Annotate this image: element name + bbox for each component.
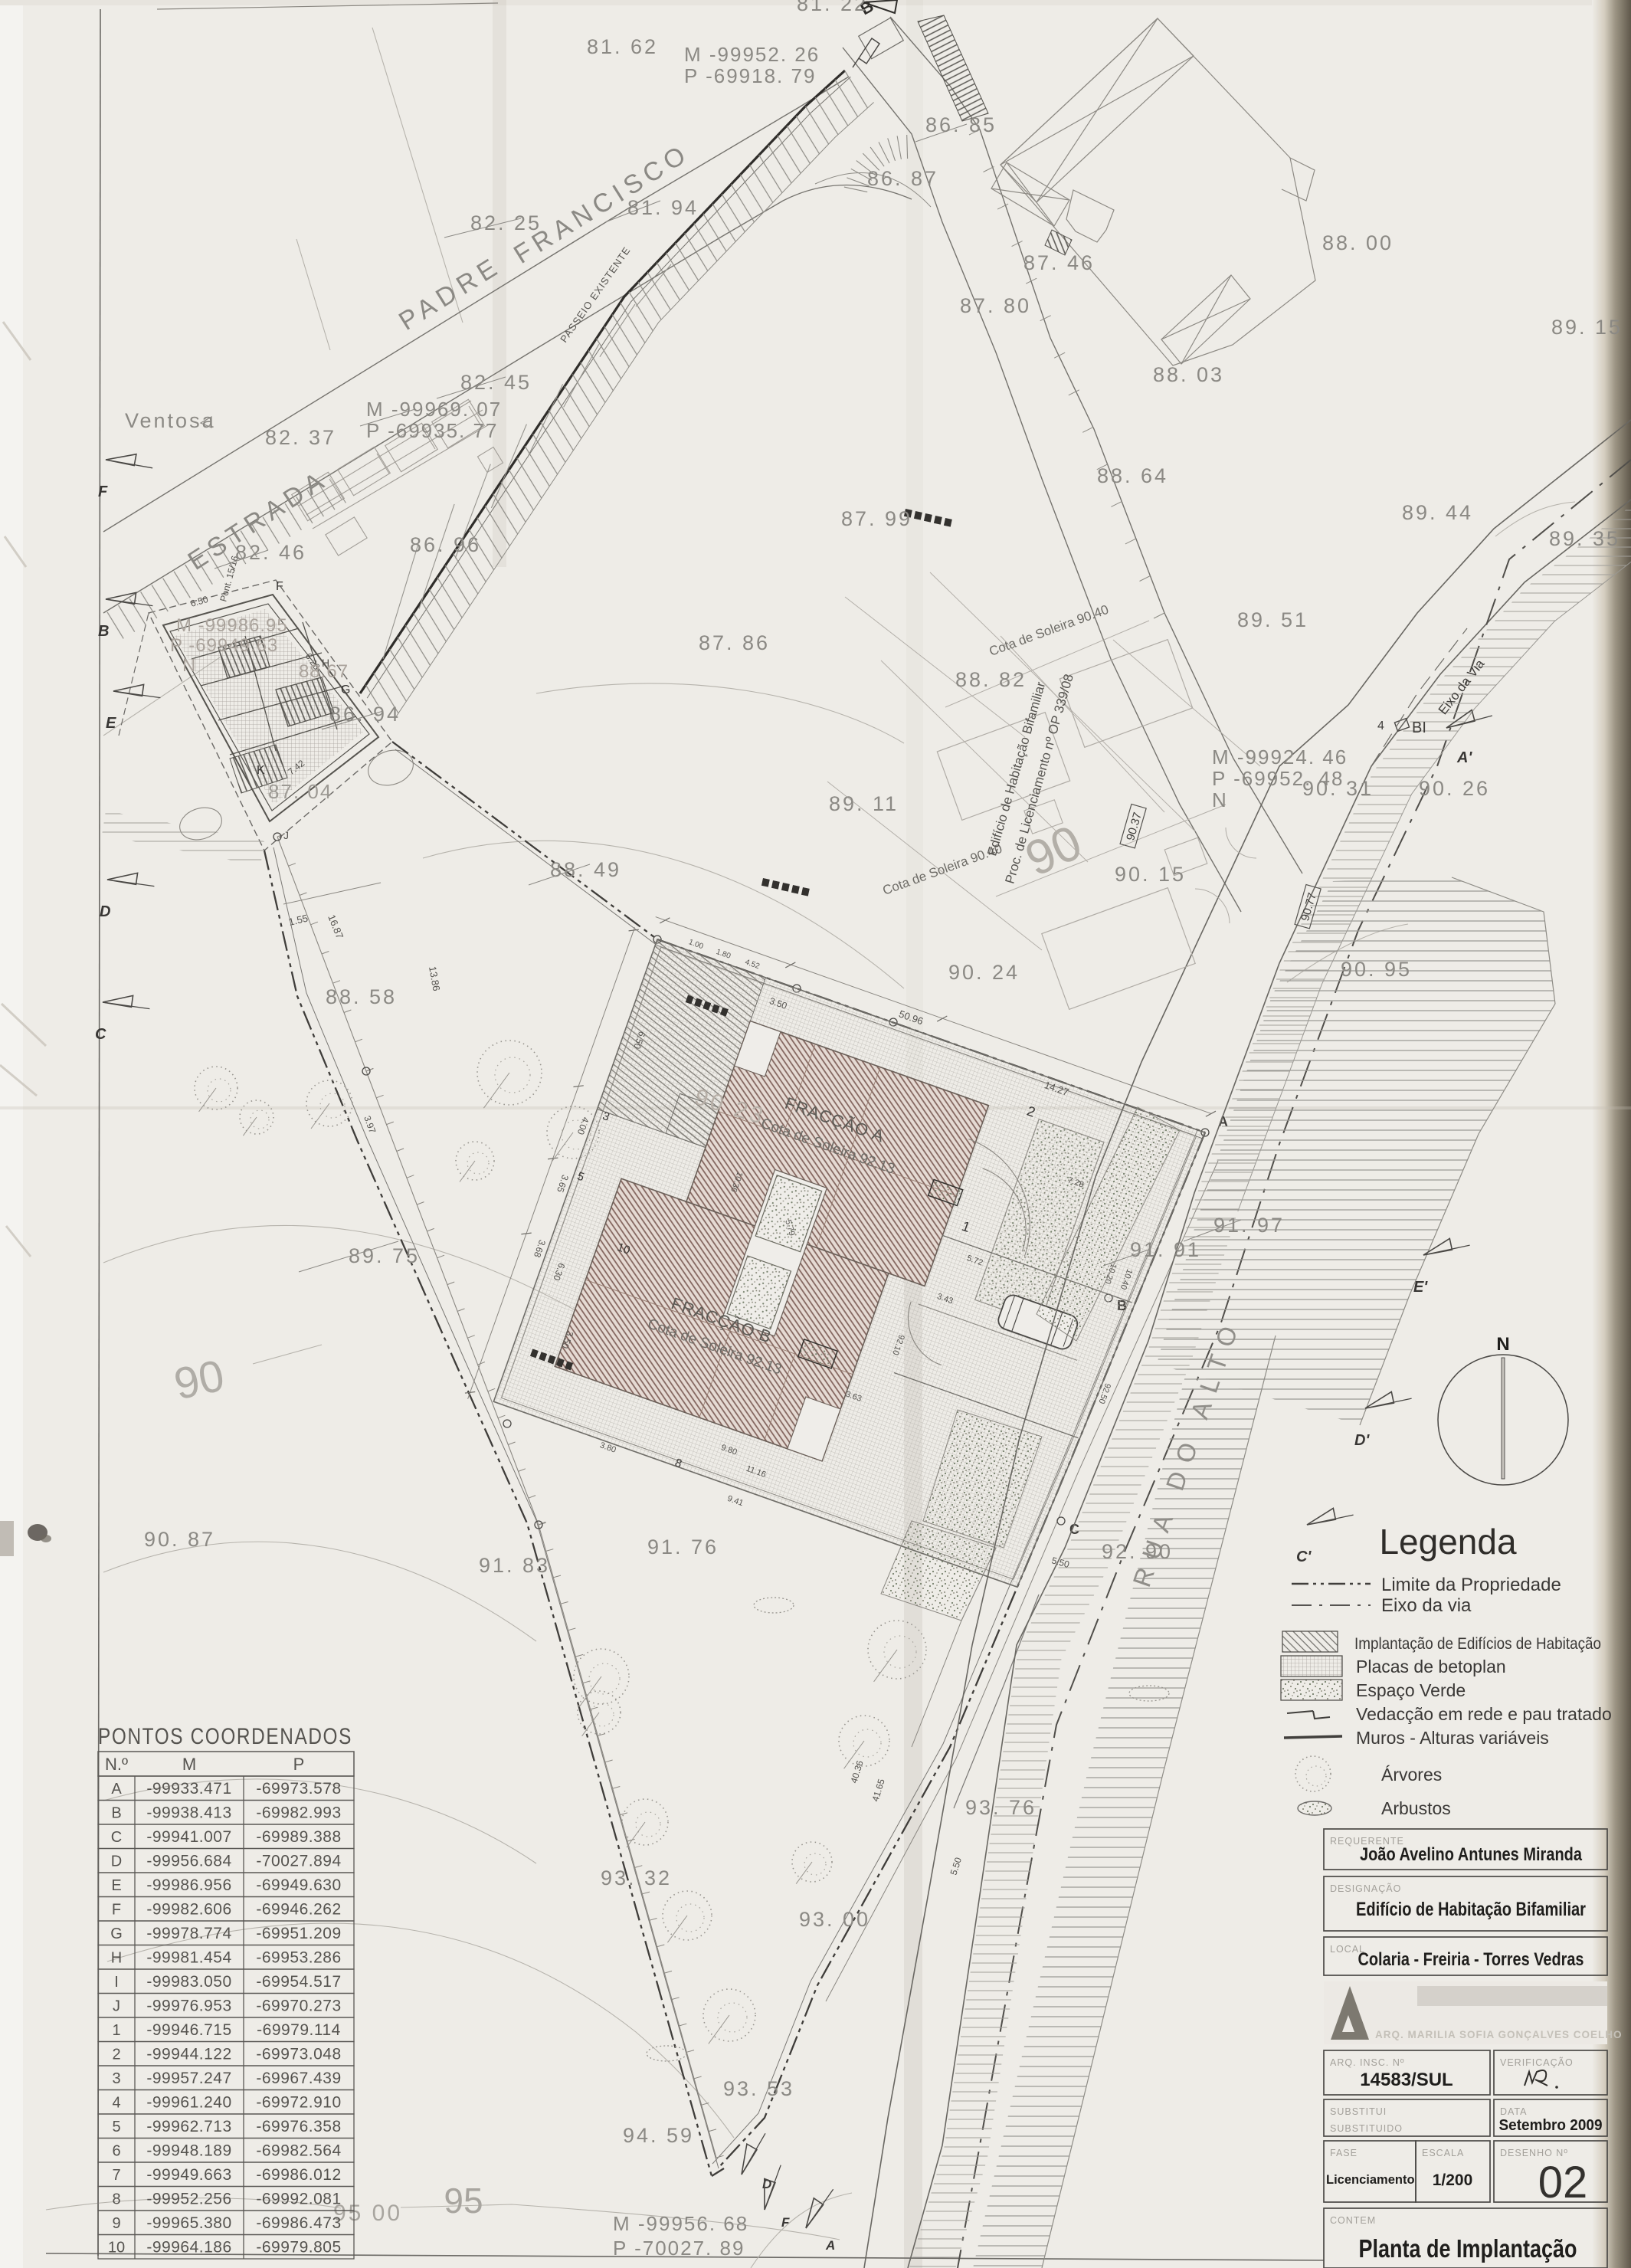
svg-text:Árvores: Árvores bbox=[1381, 1765, 1442, 1785]
svg-text:-69953.286: -69953.286 bbox=[256, 1949, 341, 1967]
svg-text:M -99969. 07: M -99969. 07 bbox=[366, 398, 502, 421]
svg-text:N.º: N.º bbox=[105, 1755, 128, 1774]
svg-text:-69986.473: -69986.473 bbox=[256, 2214, 341, 2232]
svg-text:P -69952. 48: P -69952. 48 bbox=[1212, 767, 1344, 790]
svg-text:-69972.910: -69972.910 bbox=[256, 2094, 341, 2112]
svg-text:02: 02 bbox=[1538, 2158, 1588, 2207]
svg-text:-99986.956: -99986.956 bbox=[146, 1876, 231, 1894]
svg-text:81. 22: 81. 22 bbox=[797, 0, 868, 15]
svg-text:D: D bbox=[111, 1853, 122, 1870]
svg-text:João Avelino Antunes Miranda: João Avelino Antunes Miranda bbox=[1360, 1844, 1583, 1865]
svg-text:92. 90: 92. 90 bbox=[1102, 1540, 1173, 1563]
svg-text:-99978.774: -99978.774 bbox=[146, 1925, 231, 1942]
svg-text:1/200: 1/200 bbox=[1433, 2171, 1473, 2189]
svg-text:Implantação de Edifícios de Ha: Implantação de Edifícios de Habitação bbox=[1354, 1634, 1601, 1653]
svg-text:B: B bbox=[111, 1805, 121, 1822]
svg-text:-69982.564: -69982.564 bbox=[256, 2142, 341, 2160]
svg-text:Muros - Alturas variáveis: Muros - Alturas variáveis bbox=[1356, 1728, 1549, 1748]
svg-text:87. 46: 87. 46 bbox=[1023, 251, 1095, 274]
svg-text:-69979.805: -69979.805 bbox=[256, 2239, 341, 2257]
svg-text:F: F bbox=[98, 483, 108, 500]
svg-text:81. 62: 81. 62 bbox=[587, 35, 658, 58]
svg-text:A: A bbox=[825, 2238, 835, 2253]
svg-text:-99976.953: -99976.953 bbox=[146, 1998, 231, 2015]
svg-text:10: 10 bbox=[108, 2240, 125, 2257]
svg-text:3: 3 bbox=[112, 2070, 120, 2087]
svg-text:C': C' bbox=[1296, 1549, 1312, 1565]
svg-text:93. 32: 93. 32 bbox=[601, 1867, 672, 1889]
svg-text:P -69918. 79: P -69918. 79 bbox=[684, 64, 816, 87]
svg-text:88. 64: 88. 64 bbox=[1097, 464, 1168, 487]
svg-text:M -99956. 68: M -99956. 68 bbox=[613, 2212, 748, 2235]
svg-text:88. 58: 88. 58 bbox=[326, 985, 397, 1008]
svg-text:-69976.358: -69976.358 bbox=[256, 2118, 341, 2135]
svg-text:-99961.240: -99961.240 bbox=[146, 2094, 231, 2112]
svg-text:ARQ. INSC. Nº: ARQ. INSC. Nº bbox=[1330, 2057, 1404, 2068]
svg-text:K: K bbox=[257, 764, 265, 777]
svg-text:DESENHO Nº: DESENHO Nº bbox=[1500, 2148, 1568, 2158]
svg-text:-99933.471: -99933.471 bbox=[146, 1780, 231, 1798]
svg-text:-69951.209: -69951.209 bbox=[256, 1925, 341, 1942]
svg-text:C: C bbox=[95, 1026, 106, 1043]
svg-text:C: C bbox=[111, 1829, 122, 1846]
svg-text:-70027.894: -70027.894 bbox=[256, 1853, 341, 1870]
svg-text:87. 99: 87. 99 bbox=[841, 507, 912, 530]
svg-text:90. 26: 90. 26 bbox=[1419, 777, 1490, 800]
svg-text:2: 2 bbox=[112, 2047, 120, 2063]
svg-text:-99952.256: -99952.256 bbox=[146, 2191, 231, 2208]
svg-text:91. 83: 91. 83 bbox=[479, 1554, 550, 1577]
svg-text:ESCALA: ESCALA bbox=[1422, 2148, 1464, 2158]
svg-text:E': E' bbox=[1413, 1279, 1428, 1296]
svg-text:Licenciamento: Licenciamento bbox=[1326, 2173, 1415, 2187]
svg-text:-99938.413: -99938.413 bbox=[146, 1804, 231, 1822]
svg-text:90. 87: 90. 87 bbox=[144, 1528, 215, 1551]
svg-text:6: 6 bbox=[112, 2143, 120, 2160]
svg-text:-99962.713: -99962.713 bbox=[146, 2118, 231, 2135]
svg-text:N: N bbox=[1496, 1334, 1509, 1355]
svg-text:-99983.050: -99983.050 bbox=[146, 1973, 231, 1991]
svg-text:7: 7 bbox=[112, 2167, 120, 2184]
svg-text:86. 85: 86. 85 bbox=[925, 113, 997, 136]
svg-text:86. 96: 86. 96 bbox=[410, 533, 481, 556]
svg-text:P: P bbox=[293, 1755, 305, 1774]
svg-text:-69949.630: -69949.630 bbox=[256, 1876, 341, 1894]
svg-text:-69986.012: -69986.012 bbox=[256, 2166, 341, 2184]
svg-text:90. 24: 90. 24 bbox=[948, 961, 1020, 984]
svg-text:88. 03: 88. 03 bbox=[1153, 363, 1224, 386]
svg-text:91. 76: 91. 76 bbox=[647, 1535, 719, 1558]
svg-text:D': D' bbox=[1354, 1432, 1370, 1449]
svg-text:88.67: 88.67 bbox=[299, 661, 349, 682]
svg-text:E: E bbox=[111, 1877, 121, 1894]
svg-text:DESIGNAÇÃO: DESIGNAÇÃO bbox=[1330, 1883, 1401, 1894]
svg-text:88. 49: 88. 49 bbox=[550, 858, 621, 881]
svg-text:P -69949.63: P -69949.63 bbox=[170, 635, 278, 656]
svg-text:86. 87: 86. 87 bbox=[867, 167, 938, 190]
svg-text:89. 15: 89. 15 bbox=[1551, 316, 1623, 339]
svg-text:91. 91: 91. 91 bbox=[1130, 1238, 1201, 1261]
svg-text:Planta de Implantação: Planta de Implantação bbox=[1359, 2234, 1577, 2263]
svg-text:-99941.007: -99941.007 bbox=[146, 1828, 231, 1846]
svg-text:90: 90 bbox=[170, 1350, 229, 1409]
svg-text:88. 00: 88. 00 bbox=[1322, 231, 1394, 254]
svg-text:I: I bbox=[114, 1974, 119, 1991]
svg-text:-69967.439: -69967.439 bbox=[256, 2070, 341, 2087]
svg-text:J: J bbox=[113, 1998, 120, 2015]
svg-text:93. 76: 93. 76 bbox=[965, 1796, 1037, 1819]
svg-text:91. 97: 91. 97 bbox=[1213, 1214, 1285, 1237]
svg-text:93. 53: 93. 53 bbox=[723, 2077, 794, 2100]
svg-text:95 00: 95 00 bbox=[333, 2201, 402, 2226]
svg-text:ARQ. MARILIA SOFIA GONÇALVES C: ARQ. MARILIA SOFIA GONÇALVES COELHO bbox=[1375, 2029, 1623, 2040]
svg-text:D: D bbox=[100, 903, 110, 920]
svg-text:89. 11: 89. 11 bbox=[829, 792, 899, 815]
svg-text:Eixo da via: Eixo da via bbox=[1381, 1595, 1472, 1616]
svg-text:-99982.606: -99982.606 bbox=[146, 1901, 231, 1919]
svg-text:M -99986.95: M -99986.95 bbox=[176, 615, 288, 636]
svg-text:Colaria - Freiria - Torres Ved: Colaria - Freiria - Torres Vedras bbox=[1358, 1949, 1584, 1970]
svg-text:Limite da Propriedade: Limite da Propriedade bbox=[1381, 1575, 1561, 1595]
svg-text:M -99952. 26: M -99952. 26 bbox=[684, 43, 820, 66]
svg-text:8: 8 bbox=[112, 2191, 120, 2208]
svg-text:P -70027. 89: P -70027. 89 bbox=[613, 2237, 745, 2260]
svg-text:PONTOS COORDENADOS: PONTOS COORDENADOS bbox=[98, 1724, 352, 1749]
svg-text:82. 45: 82. 45 bbox=[460, 371, 532, 394]
svg-text:87. 80: 87. 80 bbox=[960, 294, 1031, 317]
svg-text:Vedacção em rede e pau tratado: Vedacção em rede e pau tratado bbox=[1356, 1704, 1612, 1724]
svg-text:A': A' bbox=[1456, 749, 1472, 766]
svg-text:D: D bbox=[762, 2177, 771, 2191]
svg-text:1: 1 bbox=[112, 2022, 120, 2039]
svg-text:-69946.262: -69946.262 bbox=[256, 1901, 341, 1919]
svg-text:95: 95 bbox=[444, 2181, 483, 2220]
svg-text:82. 37: 82. 37 bbox=[265, 426, 336, 449]
svg-text:94. 59: 94. 59 bbox=[623, 2124, 694, 2147]
svg-text:N: N bbox=[182, 655, 196, 676]
svg-text:93. 00: 93. 00 bbox=[799, 1908, 870, 1931]
svg-text:FASE: FASE bbox=[1330, 2148, 1358, 2158]
svg-text:CONTEM: CONTEM bbox=[1330, 2215, 1376, 2226]
svg-text:-99948.189: -99948.189 bbox=[146, 2142, 231, 2160]
svg-text:P -69935. 77: P -69935. 77 bbox=[366, 419, 498, 442]
svg-text:4: 4 bbox=[1377, 719, 1384, 733]
svg-text:DATA: DATA bbox=[1500, 2106, 1527, 2117]
svg-text:81. 94: 81. 94 bbox=[627, 196, 699, 219]
svg-text:F: F bbox=[112, 1902, 121, 1919]
svg-text:F: F bbox=[276, 580, 283, 593]
svg-text:M: M bbox=[182, 1755, 196, 1774]
svg-text:-69973.578: -69973.578 bbox=[256, 1780, 341, 1798]
svg-text:-69954.517: -69954.517 bbox=[256, 1973, 341, 1991]
svg-text:4: 4 bbox=[112, 2095, 120, 2112]
svg-text:Arbustos: Arbustos bbox=[1381, 1798, 1451, 1818]
svg-text:90. 15: 90. 15 bbox=[1115, 863, 1186, 886]
svg-text:Edifício de Habitação Bifamili: Edifício de Habitação Bifamiliar bbox=[1356, 1899, 1586, 1920]
svg-text:N: N bbox=[1212, 788, 1228, 811]
svg-text:J: J bbox=[283, 829, 289, 841]
svg-text:-99965.380: -99965.380 bbox=[146, 2214, 231, 2232]
svg-text:-99981.454: -99981.454 bbox=[146, 1949, 231, 1967]
svg-text:-99956.684: -99956.684 bbox=[146, 1853, 231, 1870]
svg-text:-69989.388: -69989.388 bbox=[256, 1828, 341, 1846]
svg-text:87. 04: 87. 04 bbox=[268, 780, 332, 803]
svg-text:89. 75: 89. 75 bbox=[349, 1244, 420, 1267]
svg-text:86. 94: 86. 94 bbox=[329, 703, 401, 726]
svg-text:SUBSTITUI: SUBSTITUI bbox=[1330, 2106, 1387, 2117]
svg-text:BI: BI bbox=[1412, 719, 1426, 736]
svg-text:87. 86: 87. 86 bbox=[699, 631, 770, 654]
svg-text:5: 5 bbox=[112, 2119, 120, 2135]
svg-text:-69970.273: -69970.273 bbox=[256, 1998, 341, 2015]
svg-text:89. 51: 89. 51 bbox=[1237, 608, 1308, 631]
svg-text:E: E bbox=[106, 715, 116, 732]
svg-text:A: A bbox=[111, 1781, 122, 1798]
svg-text:89. 35: 89. 35 bbox=[1549, 527, 1620, 550]
svg-text:-99964.186: -99964.186 bbox=[146, 2239, 231, 2257]
svg-text:88. 82: 88. 82 bbox=[955, 668, 1027, 691]
svg-text:SUBSTITUIDO: SUBSTITUIDO bbox=[1330, 2123, 1403, 2134]
svg-text:G: G bbox=[110, 1926, 123, 1942]
svg-text:90. 95: 90. 95 bbox=[1341, 958, 1412, 981]
svg-text:F: F bbox=[781, 2215, 790, 2230]
svg-text:-69979.114: -69979.114 bbox=[257, 2021, 341, 2039]
svg-text:-99944.122: -99944.122 bbox=[146, 2046, 231, 2063]
svg-text:M -99924. 46: M -99924. 46 bbox=[1212, 746, 1348, 769]
svg-text:-99957.247: -99957.247 bbox=[146, 2070, 231, 2087]
svg-text:-69973.048: -69973.048 bbox=[256, 2046, 341, 2063]
svg-text:Placas de betoplan: Placas de betoplan bbox=[1356, 1657, 1506, 1676]
svg-text:Setembro 2009: Setembro 2009 bbox=[1499, 2117, 1603, 2134]
svg-text:Espaço Verde: Espaço Verde bbox=[1356, 1680, 1466, 1700]
svg-text:-99946.715: -99946.715 bbox=[146, 2021, 231, 2039]
svg-text:9: 9 bbox=[112, 2215, 120, 2232]
svg-text:H: H bbox=[111, 1950, 122, 1967]
svg-text:-69982.993: -69982.993 bbox=[256, 1804, 341, 1822]
svg-text:VERIFICAÇÃO: VERIFICAÇÃO bbox=[1500, 2057, 1574, 2068]
svg-text:14583/SUL: 14583/SUL bbox=[1360, 2070, 1453, 2090]
svg-text:89. 44: 89. 44 bbox=[1402, 501, 1473, 524]
svg-text:-69992.081: -69992.081 bbox=[256, 2191, 341, 2208]
svg-text:Legenda: Legenda bbox=[1379, 1522, 1516, 1562]
svg-text:B: B bbox=[98, 623, 109, 640]
svg-text:G: G bbox=[341, 683, 350, 696]
svg-text:-99949.663: -99949.663 bbox=[146, 2166, 231, 2184]
svg-text:Ventosa: Ventosa bbox=[125, 409, 216, 432]
